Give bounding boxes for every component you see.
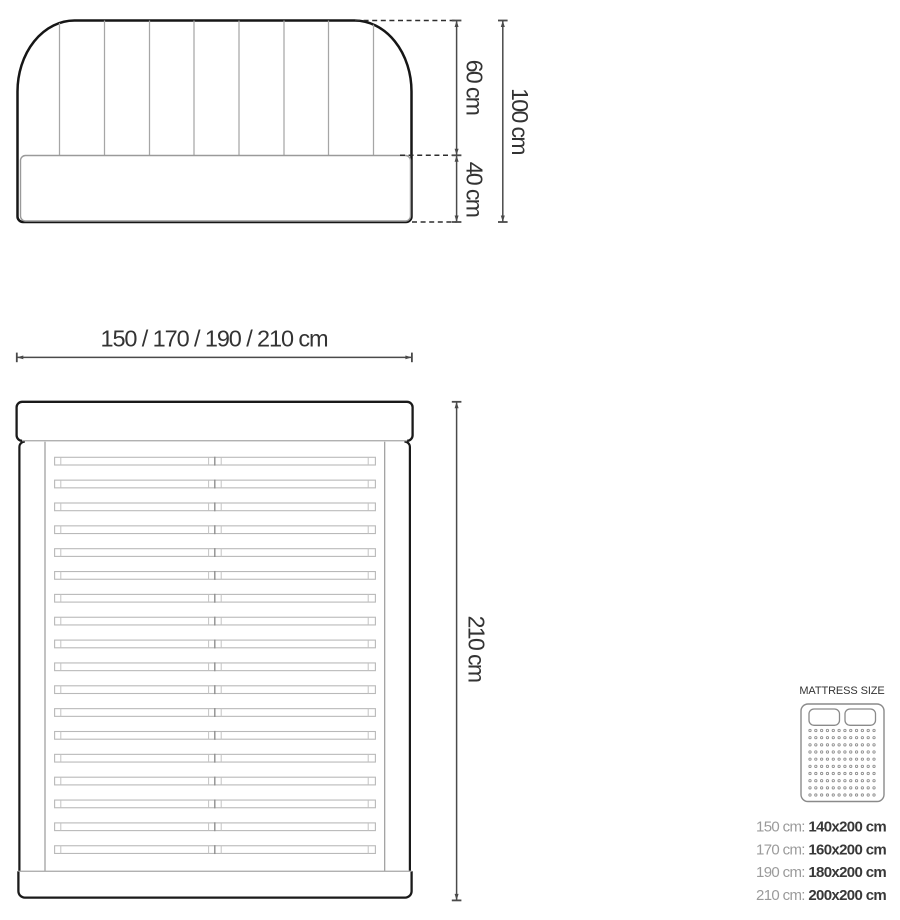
- svg-text:190 cm: 180x200 cm: 190 cm: 180x200 cm: [756, 864, 886, 881]
- svg-text:150 / 170 / 190 / 210 cm: 150 / 170 / 190 / 210 cm: [100, 326, 328, 352]
- svg-text:210 cm: 200x200 cm: 210 cm: 200x200 cm: [756, 887, 886, 904]
- svg-text:170 cm: 160x200 cm: 170 cm: 160x200 cm: [756, 841, 886, 858]
- svg-text:150 cm: 140x200 cm: 150 cm: 140x200 cm: [756, 819, 886, 836]
- svg-text:MATTRESS SIZE: MATTRESS SIZE: [799, 685, 884, 697]
- svg-text:40 cm: 40 cm: [462, 162, 488, 217]
- svg-text:100 cm: 100 cm: [507, 88, 533, 154]
- svg-text:210 cm: 210 cm: [464, 616, 490, 682]
- svg-text:60 cm: 60 cm: [462, 60, 488, 115]
